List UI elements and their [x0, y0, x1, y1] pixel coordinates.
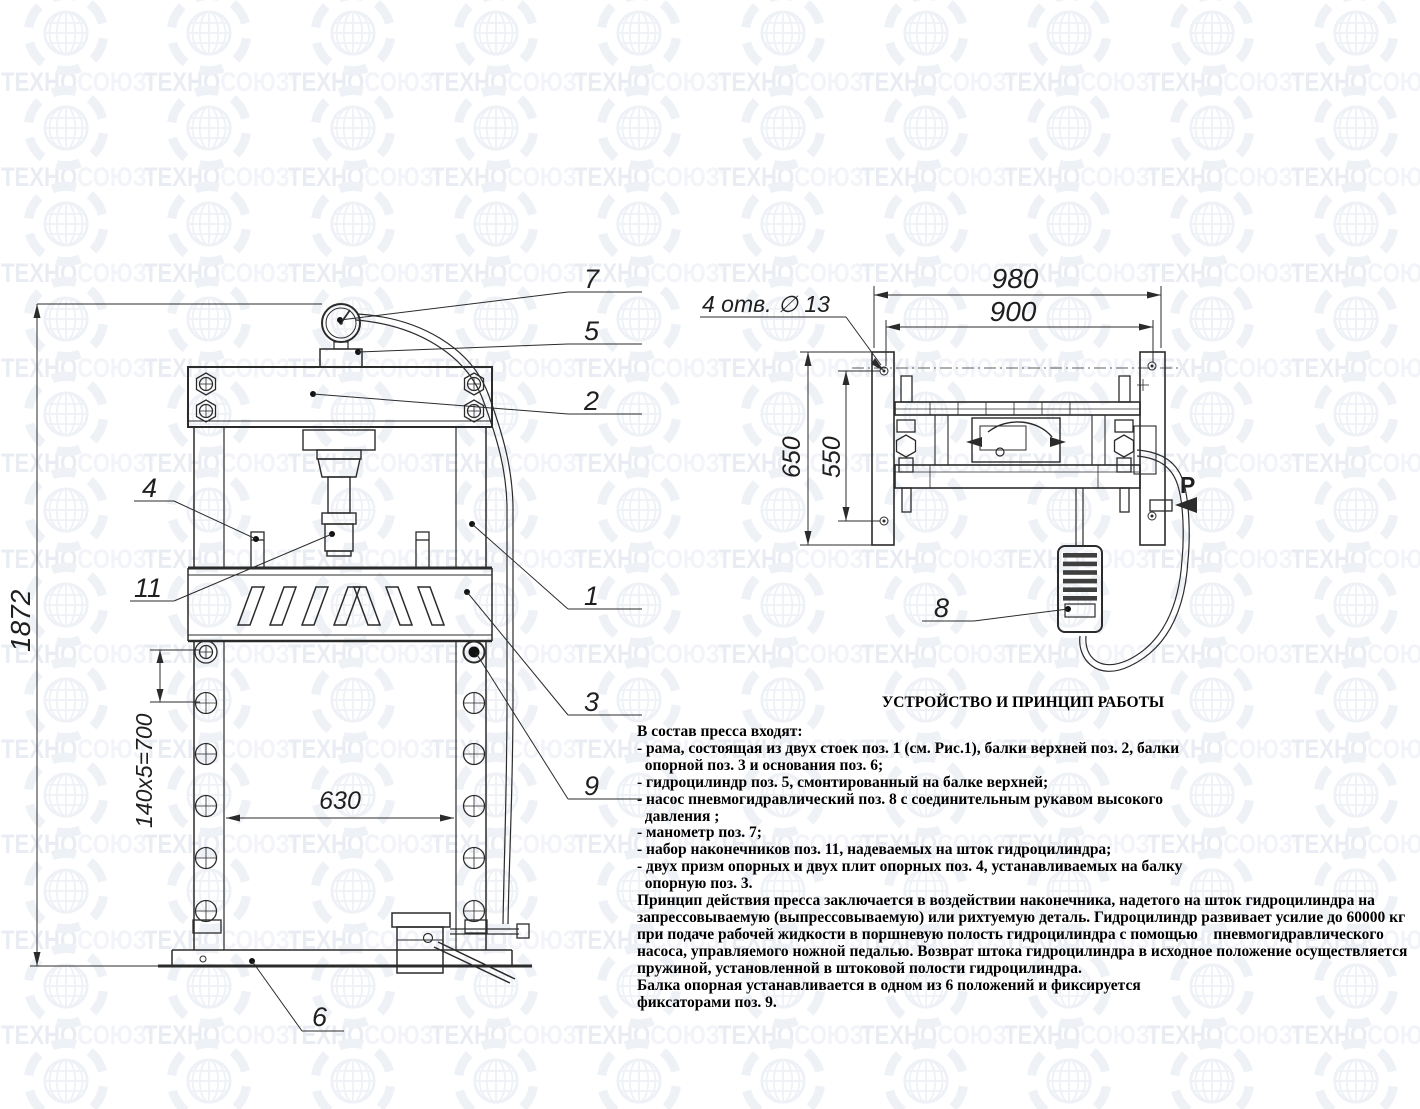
- description-text: В состав пресса входят:- рама, состоящая…: [637, 724, 1409, 1011]
- watermark-globe: [450, 0, 542, 84]
- globe-icon: [1310, 559, 1402, 651]
- foot-pedal-icon: [1058, 546, 1102, 632]
- watermark-text: ТЕХНОСОЮЗ®: [1004, 1020, 1157, 1051]
- globe-icon: [1166, 1035, 1258, 1109]
- hydraulic-cylinder: [303, 430, 375, 556]
- watermark-text: ТЕХНОСОЮЗ®: [718, 1020, 871, 1051]
- beam-assembly-top-view: [852, 352, 1178, 545]
- watermark-text: ТЕХНОСОЮЗ®: [1004, 162, 1157, 193]
- callout-9: 9: [584, 771, 599, 801]
- dim-overall-height-label: 1872: [5, 589, 36, 652]
- globe-icon: [737, 0, 829, 79]
- globe-icon: [163, 82, 255, 174]
- watermark-text: ТЕХНОСОЮЗ®: [861, 162, 1014, 193]
- holes-note: 4 отв. ∅ 13: [700, 291, 884, 371]
- watermark-globe: [737, 82, 829, 179]
- watermark-globe: [737, 0, 829, 84]
- text-line: - насос пневмогидравлический поз. 8 с со…: [637, 792, 1409, 809]
- dim-table-width-label: 630: [319, 787, 361, 815]
- callout-7: 7: [584, 264, 600, 294]
- callout-3: 3: [584, 687, 599, 717]
- watermark-globe: [880, 82, 972, 179]
- text-line: запрессовываемую (выпрессовываемую) или …: [637, 910, 1409, 927]
- center-mechanism: [966, 418, 1066, 462]
- watermark-globe: [450, 82, 542, 179]
- text-line: давления ;: [637, 809, 1409, 826]
- globe-icon: [1166, 82, 1258, 174]
- watermark-globe: [1166, 82, 1258, 179]
- beam-fixators: [195, 641, 485, 663]
- support-beam: [188, 568, 492, 641]
- watermark-globe: [1310, 368, 1402, 465]
- globe-icon: [1023, 178, 1115, 270]
- text-line: пружиной, установленной в штоковой полос…: [637, 961, 1409, 978]
- watermark-globe: [593, 82, 685, 179]
- watermark-text: ТЕХНОСОЮЗ®: [1004, 67, 1157, 98]
- watermark-text: ТЕХНОСОЮЗ®: [288, 162, 441, 193]
- watermark-globe: [1310, 559, 1402, 656]
- globe-icon: [1310, 82, 1402, 174]
- pressure-label: P: [1180, 472, 1195, 498]
- watermark-globe: [1023, 82, 1115, 179]
- watermark-globe: [307, 82, 399, 179]
- text-line: - рама, состоящая из двух стоек поз. 1 (…: [637, 741, 1409, 758]
- watermark-text: ТЕХНОСОЮЗ®: [431, 67, 584, 98]
- globe-icon: [1310, 464, 1402, 556]
- watermark-globe: [1310, 464, 1402, 561]
- watermark-text: ТЕХНОСОЮЗ®: [1291, 1020, 1420, 1051]
- page: { "watermark": { "brand_head": "ТЕХНО", …: [0, 0, 1420, 1109]
- watermark-globe: [880, 1035, 972, 1109]
- holes-note-label: 4 отв. ∅ 13: [702, 291, 830, 317]
- globe-icon: [450, 82, 542, 174]
- globe-icon: [1310, 368, 1402, 460]
- front-callouts: 7 5 2 1 3 9 4 11 6: [130, 264, 642, 1032]
- watermark-text: ТЕХНОСОЮЗ®: [1147, 67, 1300, 98]
- watermark-text: ТЕХНОСОЮЗ®: [718, 162, 871, 193]
- callout-4: 4: [142, 473, 157, 503]
- watermark-globe: [20, 82, 112, 179]
- text-line: Принцип действия пресса заключается в во…: [637, 893, 1409, 910]
- watermark-globe: [1166, 1035, 1258, 1109]
- globe-icon: [880, 82, 972, 174]
- watermark-globe: [163, 82, 255, 179]
- globe-icon: [1166, 0, 1258, 79]
- watermark-globe: [1310, 178, 1402, 275]
- text-line: - гидроцилиндр поз. 5, смонтированный на…: [637, 775, 1409, 792]
- text-line: В состав пресса входят:: [637, 724, 1409, 741]
- watermark-globe: [593, 0, 685, 84]
- watermark-text: ТЕХНОСОЮЗ®: [144, 67, 297, 98]
- watermark-text: ТЕХНОСОЮЗ®: [431, 162, 584, 193]
- globe-icon: [1310, 0, 1402, 79]
- watermark-text: ТЕХНОСОЮЗ®: [861, 1020, 1014, 1051]
- watermark-globe: [1310, 1035, 1402, 1109]
- callout-2: 2: [583, 386, 599, 416]
- watermark-text: ТЕХНОСОЮЗ®: [861, 67, 1014, 98]
- globe-icon: [307, 82, 399, 174]
- dim-plate-height-label: 650: [778, 436, 806, 478]
- text-line: насоса, управляемого ножной педалью. Воз…: [637, 944, 1409, 961]
- watermark-globe: [737, 1035, 829, 1109]
- globe-icon: [880, 0, 972, 79]
- text-line: при подаче рабочей жидкости в поршневую …: [637, 927, 1409, 944]
- dim-overall-width-label: 980: [992, 263, 1039, 294]
- text-line: Балка опорная устанавливается в одном из…: [637, 978, 1409, 995]
- watermark-text: ТЕХНОСОЮЗ®: [288, 67, 441, 98]
- dim-hole-span-v-label: 550: [818, 436, 846, 478]
- dimension-hole-span-vertical: 550: [818, 371, 880, 521]
- watermark-text: ТЕХНОСОЮЗ®: [574, 162, 727, 193]
- watermark-text: ТЕХНОСОЮЗ®: [1291, 67, 1420, 98]
- text-line: - двух призм опорных и двух плит опорных…: [637, 859, 1409, 876]
- globe-icon: [593, 0, 685, 79]
- watermark-globe: [1023, 1035, 1115, 1109]
- text-line: фиксаторами поз. 9.: [637, 995, 1409, 1012]
- watermark-globe: [1166, 0, 1258, 84]
- globe-icon: [737, 178, 829, 270]
- air-inlet: P: [1150, 472, 1197, 513]
- pressure-gauge-icon: [320, 304, 362, 367]
- support-prisms: [251, 532, 429, 568]
- globe-icon: [1310, 273, 1402, 365]
- callout-5: 5: [584, 316, 600, 346]
- description-block: УСТРОЙСТВО И ПРИНЦИП РАБОТЫ В состав пре…: [637, 694, 1409, 1011]
- globe-icon: [880, 178, 972, 270]
- columns-upper: [194, 427, 486, 568]
- globe-icon: [737, 1035, 829, 1109]
- watermark-text: ТЕХНОСОЮЗ®: [1291, 639, 1420, 670]
- globe-icon: [737, 82, 829, 174]
- dimension-hole-spacing: 140x5=700: [131, 650, 200, 828]
- watermark-text: ТЕХНОСОЮЗ®: [1, 162, 154, 193]
- air-flow-arrow-icon: [1175, 497, 1197, 513]
- text-line: - манометр поз. 7;: [637, 825, 1409, 842]
- globe-icon: [593, 82, 685, 174]
- watermark-globe: [1023, 0, 1115, 84]
- text-line: опорную поз. 3.: [637, 876, 1409, 893]
- dimension-table-width: 630: [226, 787, 454, 822]
- globe-icon: [1310, 178, 1402, 270]
- watermark-text: ТЕХНОСОЮЗ®: [1291, 544, 1420, 575]
- watermark-text: ТЕХНОСОЮЗ®: [1, 67, 154, 98]
- globe-icon: [307, 0, 399, 79]
- watermark-globe: [20, 0, 112, 84]
- globe-icon: [1023, 1035, 1115, 1109]
- globe-icon: [450, 0, 542, 79]
- watermark-globe: [1310, 82, 1402, 179]
- watermark-globe: [1310, 0, 1402, 84]
- pump-pedal-group: 8: [922, 450, 1189, 671]
- watermark-text: ТЕХНОСОЮЗ®: [574, 67, 727, 98]
- globe-icon: [1023, 0, 1115, 79]
- dim-hole-pattern-label: 140x5=700: [131, 713, 157, 828]
- watermark-globe: [880, 0, 972, 84]
- watermark-globe: [307, 0, 399, 84]
- watermark-text: ТЕХНОСОЮЗ®: [1147, 162, 1300, 193]
- watermark-text: ТЕХНОСОЮЗ®: [1147, 1020, 1300, 1051]
- watermark-text: ТЕХНОСОЮЗ®: [1291, 353, 1420, 384]
- globe-icon: [163, 0, 255, 79]
- section-title: УСТРОЙСТВО И ПРИНЦИП РАБОТЫ: [637, 694, 1409, 712]
- text-line: - набор наконечников поз. 11, надеваемых…: [637, 842, 1409, 859]
- press-frame: [158, 304, 532, 983]
- top-beam: [188, 367, 492, 427]
- watermark-text: ТЕХНОСОЮЗ®: [1291, 162, 1420, 193]
- front-view-drawing: 1872 140x5=700 630: [0, 250, 670, 1050]
- globe-icon: [880, 1035, 972, 1109]
- base: [158, 950, 532, 966]
- top-view-drawing: 980 900 4 отв. ∅ 13 650 550: [690, 260, 1230, 700]
- callout-1: 1: [584, 581, 599, 611]
- watermark-globe: [1310, 273, 1402, 370]
- watermark-text: ТЕХНОСОЮЗ®: [718, 67, 871, 98]
- dim-hole-span-h-label: 900: [990, 296, 1037, 327]
- dimension-hole-span-horizontal: 900: [886, 296, 1153, 366]
- callout-8: 8: [934, 593, 949, 623]
- globe-icon: [20, 0, 112, 79]
- globe-icon: [1166, 178, 1258, 270]
- globe-icon: [1023, 82, 1115, 174]
- globe-icon: [20, 82, 112, 174]
- callout-6: 6: [312, 1002, 328, 1032]
- text-line: опорной поз. 3 и основания поз. 6;: [637, 758, 1409, 775]
- watermark-text: ТЕХНОСОЮЗ®: [1291, 258, 1420, 289]
- watermark-text: ТЕХНОСОЮЗ®: [144, 162, 297, 193]
- watermark-text: ТЕХНОСОЮЗ®: [1291, 448, 1420, 479]
- watermark-globe: [163, 0, 255, 84]
- globe-icon: [1310, 1035, 1402, 1109]
- callout-11: 11: [134, 573, 162, 603]
